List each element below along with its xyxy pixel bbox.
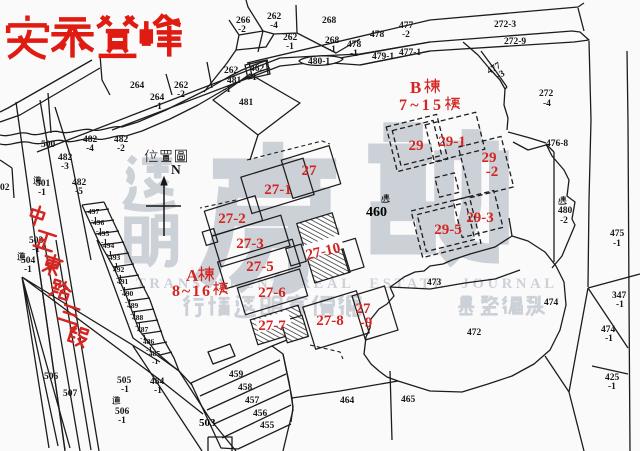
svg-text:479-1: 479-1: [372, 52, 394, 62]
svg-text:-1: -1: [249, 73, 257, 83]
svg-text:-1: -1: [613, 239, 621, 249]
svg-text:506: 506: [44, 372, 59, 382]
svg-text:474: 474: [544, 298, 559, 308]
svg-text:N: N: [171, 162, 181, 177]
svg-text:27-5: 27-5: [246, 259, 274, 275]
svg-text:27-2: 27-2: [218, 211, 246, 227]
svg-text:-9: -9: [360, 315, 373, 331]
svg-text:-2: -2: [238, 25, 246, 35]
svg-text:-1: -1: [605, 334, 613, 344]
svg-text:262: 262: [224, 66, 239, 76]
svg-text:476-8: 476-8: [546, 139, 568, 149]
svg-text:478: 478: [370, 30, 385, 40]
svg-text:272-9: 272-9: [504, 37, 526, 47]
svg-text:503: 503: [199, 417, 216, 429]
svg-text:27: 27: [302, 163, 318, 179]
svg-text:268: 268: [322, 16, 337, 26]
svg-text:-1: -1: [286, 42, 294, 52]
svg-text:B: B: [410, 78, 421, 97]
svg-text:-2: -2: [560, 216, 568, 226]
svg-text:458: 458: [238, 383, 253, 393]
svg-text:-1: -1: [223, 85, 231, 95]
svg-text:27-3: 27-3: [236, 236, 264, 252]
svg-text:480: 480: [558, 206, 573, 216]
svg-text:29-3: 29-3: [466, 210, 494, 226]
svg-text:-1: -1: [121, 385, 129, 395]
svg-text:475: 475: [610, 229, 625, 239]
svg-text:272-3: 272-3: [494, 20, 516, 30]
svg-text:29-5: 29-5: [434, 222, 462, 238]
svg-text:-3: -3: [61, 162, 69, 172]
svg-text:455: 455: [260, 421, 275, 431]
svg-text:481: 481: [239, 98, 254, 108]
svg-text:-1: -1: [152, 357, 158, 366]
svg-text:-1: -1: [118, 416, 126, 426]
svg-text:-2: -2: [177, 90, 185, 100]
svg-text:-4: -4: [543, 99, 551, 109]
svg-text:477-1: 477-1: [399, 48, 421, 58]
svg-text:456: 456: [253, 409, 268, 419]
svg-text:-1: -1: [350, 49, 358, 59]
svg-text:29-1: 29-1: [438, 134, 466, 150]
svg-text:-1: -1: [154, 386, 162, 396]
svg-text:500: 500: [41, 140, 56, 150]
svg-text:-2: -2: [402, 30, 410, 40]
svg-text:-1: -1: [38, 188, 46, 198]
svg-text:-1: -1: [328, 45, 336, 55]
svg-text:-1: -1: [608, 382, 616, 392]
svg-text:-4: -4: [86, 144, 94, 154]
svg-text:457: 457: [245, 396, 260, 406]
svg-text:29: 29: [409, 138, 424, 154]
svg-text:-2: -2: [486, 164, 499, 180]
svg-text:-1: -1: [616, 300, 624, 310]
svg-text:-2: -2: [117, 144, 125, 154]
svg-text:272: 272: [539, 89, 554, 99]
svg-text:27-6: 27-6: [258, 285, 286, 301]
svg-text:27-1: 27-1: [264, 182, 292, 198]
svg-text:-4: -4: [270, 21, 278, 31]
svg-text:27-7: 27-7: [258, 318, 286, 334]
svg-text:-1: -1: [154, 102, 162, 112]
svg-text:473: 473: [427, 278, 442, 288]
svg-text:02: 02: [0, 183, 10, 193]
svg-text:507: 507: [63, 389, 78, 399]
svg-text:-1: -1: [24, 265, 32, 275]
svg-text:-5: -5: [75, 187, 83, 197]
svg-text:264: 264: [130, 81, 145, 91]
svg-text:459: 459: [229, 370, 244, 380]
svg-text:472: 472: [467, 328, 482, 338]
svg-text:464: 464: [340, 396, 355, 406]
svg-text:27-8: 27-8: [316, 313, 344, 329]
svg-text:480-1: 480-1: [308, 57, 330, 67]
svg-text:465: 465: [401, 395, 416, 405]
svg-text:460: 460: [366, 205, 387, 220]
